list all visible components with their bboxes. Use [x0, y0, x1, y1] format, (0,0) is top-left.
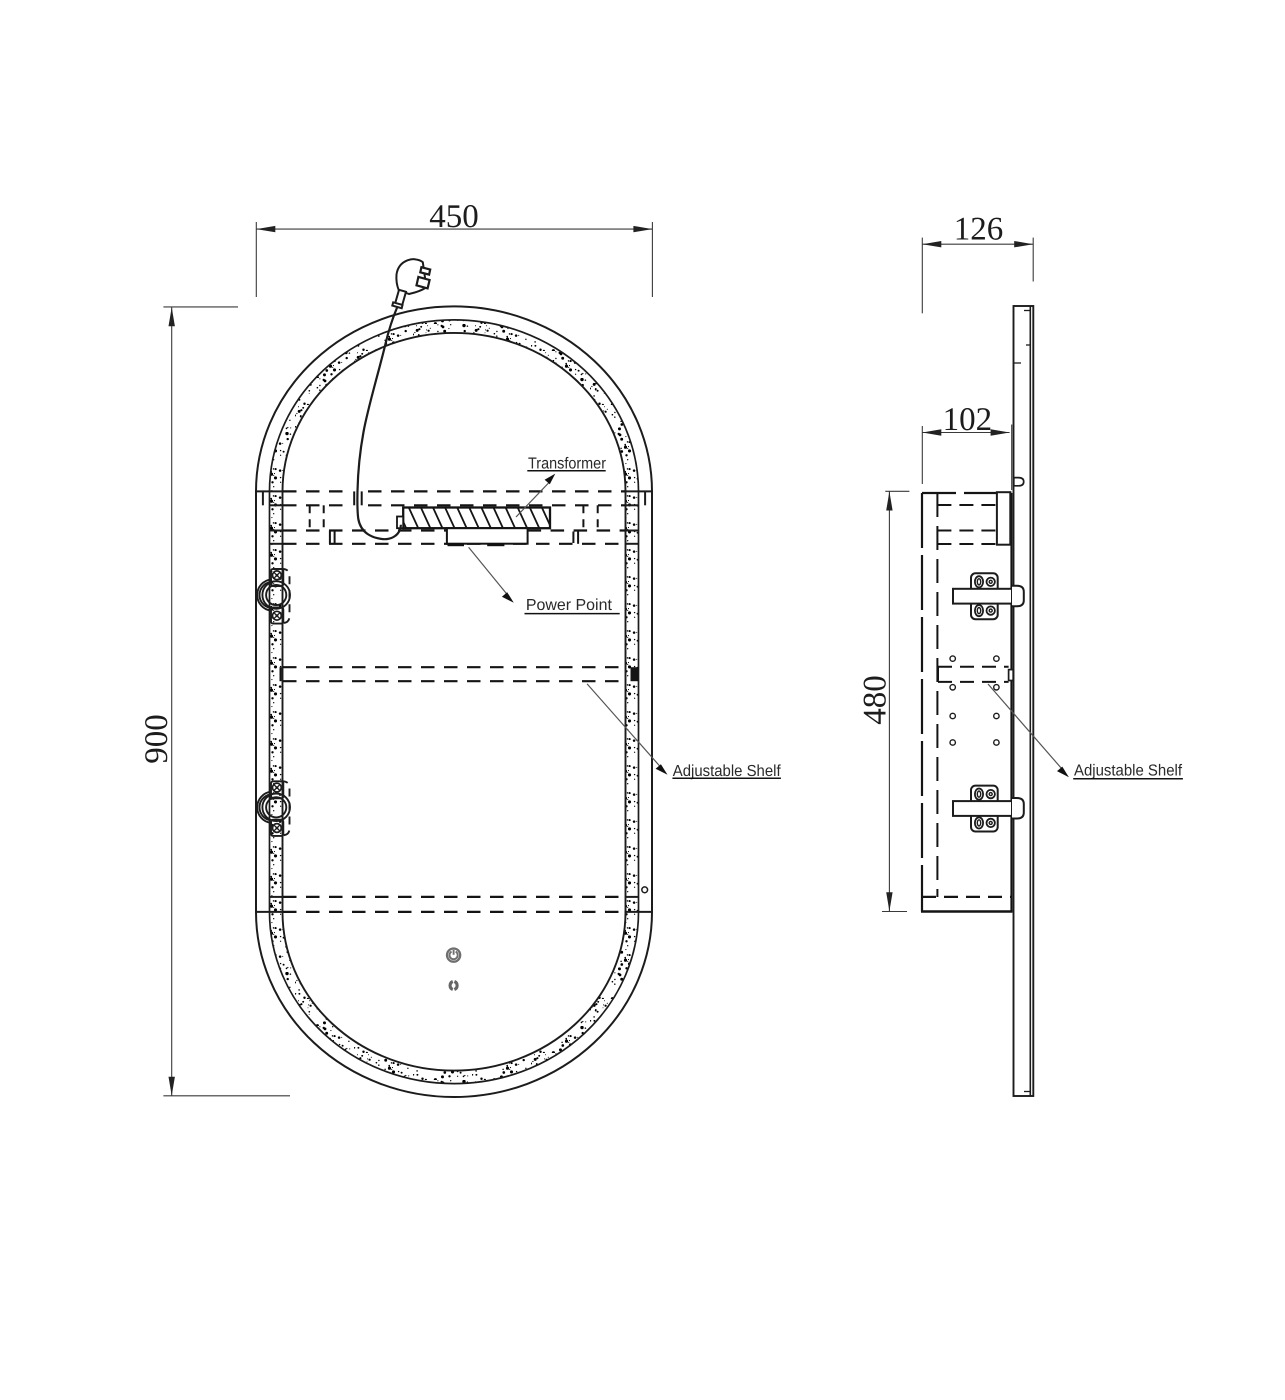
- svg-text:Adjustable Shelf: Adjustable Shelf: [1074, 762, 1183, 779]
- svg-text:126: 126: [954, 212, 1004, 248]
- svg-text:450: 450: [429, 199, 479, 235]
- svg-text:Power Point: Power Point: [526, 597, 613, 614]
- svg-text:480: 480: [858, 675, 894, 725]
- svg-text:900: 900: [139, 714, 175, 764]
- svg-text:Adjustable Shelf: Adjustable Shelf: [673, 763, 781, 780]
- svg-text:102: 102: [943, 402, 993, 438]
